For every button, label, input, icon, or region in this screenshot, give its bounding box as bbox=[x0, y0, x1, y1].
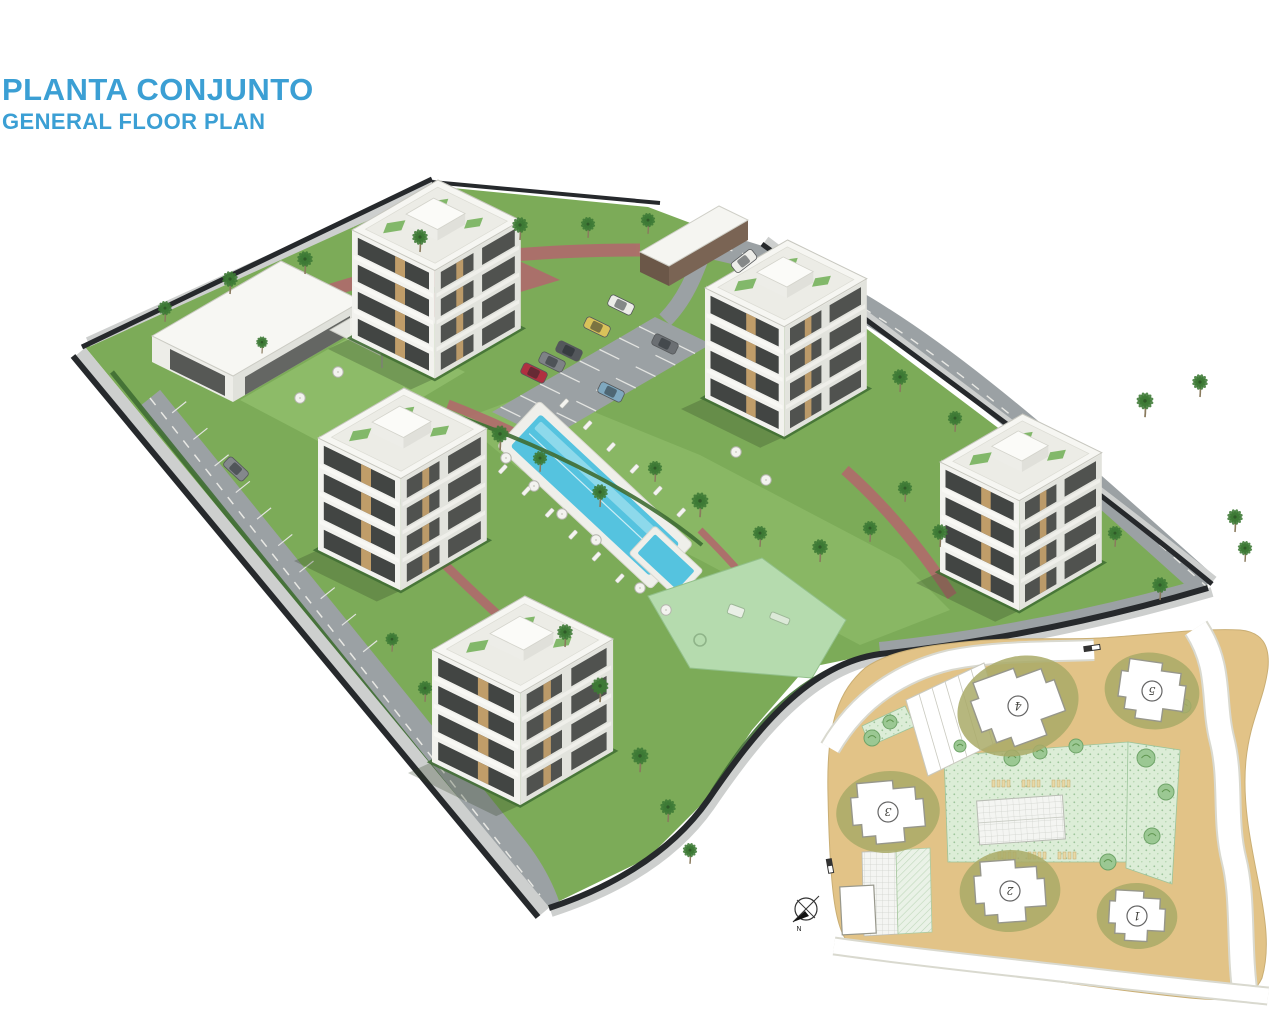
site-plan-2d: 1 2 3 4 5 N bbox=[793, 628, 1268, 1000]
plan-building-label-2: 2 bbox=[1000, 881, 1020, 901]
umbrella-icon bbox=[557, 509, 567, 519]
palm-tree-icon bbox=[1136, 392, 1154, 417]
umbrella-icon bbox=[333, 367, 343, 377]
scene-canvas: 1 2 3 4 5 N bbox=[0, 0, 1280, 1024]
plan-clubhouse-footprint bbox=[840, 885, 876, 935]
palm-tree-icon bbox=[682, 842, 697, 863]
palm-tree-icon bbox=[1192, 374, 1209, 397]
plan-lounger bbox=[1057, 780, 1060, 787]
umbrella-icon bbox=[295, 393, 305, 403]
plan-tree-icon bbox=[1137, 749, 1155, 767]
plan-number-4: 4 bbox=[1015, 699, 1023, 712]
plan-building-label-5: 5 bbox=[1142, 681, 1162, 701]
plan-lounger bbox=[1043, 852, 1046, 859]
plan-lounger bbox=[1058, 852, 1061, 859]
plan-tree-icon bbox=[1100, 854, 1116, 870]
plan-tree-icon bbox=[1158, 784, 1174, 800]
palm-tree-icon bbox=[1227, 509, 1244, 532]
compass-label: N bbox=[796, 925, 801, 933]
plan-lounger bbox=[1063, 852, 1066, 859]
plan-number-2: 2 bbox=[1007, 884, 1015, 897]
plan-lounger bbox=[1067, 780, 1070, 787]
plan-building-label-1: 1 bbox=[1127, 906, 1147, 926]
plan-lounger bbox=[1037, 780, 1040, 787]
plan-lounger bbox=[1068, 852, 1071, 859]
plan-tree-icon bbox=[864, 730, 880, 746]
umbrella-icon bbox=[591, 535, 601, 545]
plan-tree-icon bbox=[1144, 828, 1160, 844]
plan-lounger bbox=[992, 780, 995, 787]
plan-lounger bbox=[1032, 780, 1035, 787]
plan-building-label-3: 3 bbox=[878, 802, 898, 822]
plan-tree-icon bbox=[883, 715, 897, 729]
plan-building-label-4: 4 bbox=[1008, 696, 1028, 716]
umbrella-icon bbox=[501, 453, 511, 463]
plan-central-pool bbox=[977, 795, 1066, 845]
plan-lounger bbox=[1052, 780, 1055, 787]
north-compass-icon: N bbox=[793, 896, 819, 933]
plan-lounger bbox=[1062, 780, 1065, 787]
plan-lounger bbox=[1027, 780, 1030, 787]
plan-lounger bbox=[1073, 852, 1076, 859]
plan-number-1: 1 bbox=[1134, 909, 1141, 922]
plan-tree-icon bbox=[1069, 739, 1083, 753]
plan-lounger bbox=[997, 780, 1000, 787]
plan-lounger bbox=[1007, 780, 1010, 787]
plan-lounger bbox=[1022, 780, 1025, 787]
page: PLANTA CONJUNTO GENERAL FLOOR PLAN bbox=[0, 0, 1280, 1024]
umbrella-icon bbox=[731, 447, 741, 457]
palm-tree-icon bbox=[1237, 540, 1252, 561]
plan-tree-icon bbox=[954, 740, 966, 752]
plan-number-3: 3 bbox=[885, 805, 892, 818]
umbrella-icon bbox=[761, 475, 771, 485]
plan-number-5: 5 bbox=[1149, 684, 1156, 697]
plan-lounger bbox=[1002, 780, 1005, 787]
umbrella-icon bbox=[635, 583, 645, 593]
umbrella-icon bbox=[661, 605, 671, 615]
